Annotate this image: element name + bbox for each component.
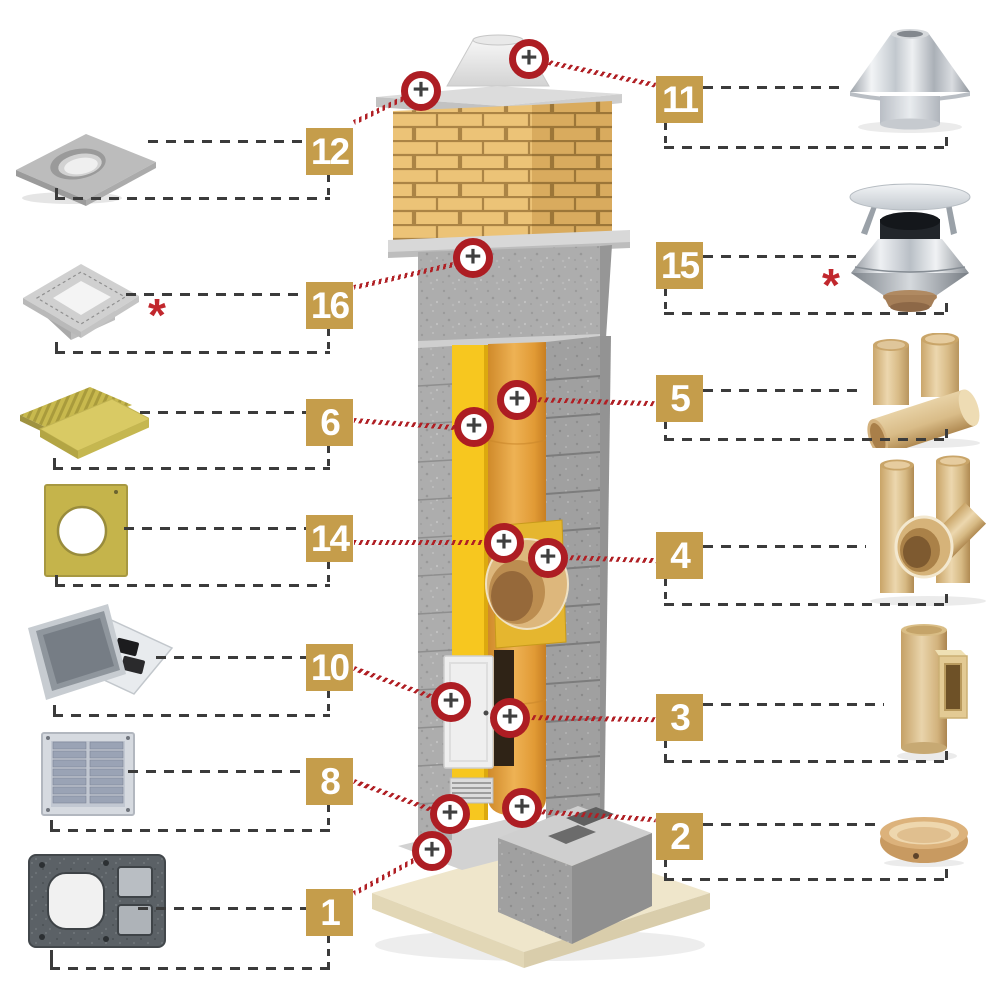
dash-line-3 xyxy=(703,703,884,706)
plus-marker-11[interactable]: + xyxy=(509,39,549,79)
plus-marker-8[interactable]: + xyxy=(430,794,470,834)
sloped-form-image xyxy=(15,252,145,347)
asterisk-15: * xyxy=(822,258,840,312)
chimney-block-image xyxy=(26,851,168,951)
product-cone-cap-with-plate xyxy=(845,173,975,315)
dash-line-6 xyxy=(140,411,306,414)
bracket-tick-8 xyxy=(50,820,53,829)
plus-marker-12[interactable]: + xyxy=(401,71,441,111)
bracket-h-8 xyxy=(50,829,330,832)
dash-line-12 xyxy=(148,140,306,143)
bracket-tick-6 xyxy=(53,458,56,467)
bracket-v-8 xyxy=(327,805,330,829)
bracket-v-2 xyxy=(664,860,667,878)
bracket-v-10 xyxy=(327,691,330,714)
bracket-tick-12 xyxy=(55,188,58,197)
bracket-h-1 xyxy=(50,967,330,970)
bracket-h-14 xyxy=(55,584,330,587)
condensate-bowl-image xyxy=(878,811,970,867)
product-stainless-chimney-cap xyxy=(836,24,984,134)
asterisk-16: * xyxy=(148,288,166,342)
bracket-v-1 xyxy=(327,936,330,967)
bracket-h-4 xyxy=(664,603,948,606)
label-10: 10 xyxy=(306,644,353,691)
bracket-tick-15 xyxy=(945,303,948,312)
dash-line-4 xyxy=(703,545,866,548)
label-3: 3 xyxy=(656,694,703,741)
plus-marker-1[interactable]: + xyxy=(412,831,452,871)
bracket-v-16 xyxy=(327,329,330,351)
plus-marker-5[interactable]: + xyxy=(497,380,537,420)
product-condensate-bowl xyxy=(878,811,970,867)
product-chimney-block xyxy=(26,851,168,951)
plus-marker-14[interactable]: + xyxy=(484,523,524,563)
bracket-v-15 xyxy=(664,289,667,312)
label-6: 6 xyxy=(306,399,353,446)
label-2: 2 xyxy=(656,813,703,860)
dash-line-1 xyxy=(138,907,306,910)
bracket-v-3 xyxy=(664,741,667,760)
cone-cap-image xyxy=(845,173,975,315)
bracket-v-12 xyxy=(327,175,330,197)
inspection-pipe-image xyxy=(895,622,970,762)
cover-slab-image xyxy=(10,126,160,206)
label-11: 11 xyxy=(656,76,703,123)
bracket-tick-16 xyxy=(55,342,58,351)
bracket-v-6 xyxy=(327,446,330,467)
plus-marker-4[interactable]: + xyxy=(528,538,568,578)
insulation-boards-image xyxy=(14,377,149,469)
product-inspection-door xyxy=(16,598,178,708)
dash-line-11 xyxy=(703,86,840,89)
plus-marker-16[interactable]: + xyxy=(453,238,493,278)
bracket-h-10 xyxy=(53,714,330,717)
bracket-h-3 xyxy=(664,760,948,763)
dash-line-10 xyxy=(156,656,306,659)
wool-plate-image xyxy=(42,482,130,579)
product-sloped-top-form xyxy=(15,252,145,347)
bracket-tick-2 xyxy=(945,869,948,878)
product-ceramic-tee-45 xyxy=(862,455,997,607)
dash-line-2 xyxy=(703,823,878,826)
label-5: 5 xyxy=(656,375,703,422)
plus-marker-6[interactable]: + xyxy=(454,407,494,447)
dash-line-8 xyxy=(128,770,306,773)
bracket-h-2 xyxy=(664,878,948,881)
product-wool-plate-with-hole xyxy=(42,482,130,579)
product-insulation-boards xyxy=(14,377,149,469)
bracket-v-4 xyxy=(664,579,667,603)
bracket-tick-5 xyxy=(945,429,948,438)
plus-marker-10[interactable]: + xyxy=(431,682,471,722)
bracket-tick-3 xyxy=(945,751,948,760)
bracket-tick-1 xyxy=(50,950,53,967)
pipe-segments-image xyxy=(865,333,985,448)
bracket-tick-4 xyxy=(945,594,948,603)
label-8: 8 xyxy=(306,758,353,805)
label-4: 4 xyxy=(656,532,703,579)
chimney-components-diagram: 12 16 6 14 10 8 1 11 15 5 4 3 2 * * xyxy=(0,0,1000,1000)
bracket-h-6 xyxy=(53,467,330,470)
product-cover-slab-with-hole xyxy=(10,126,160,206)
bracket-h-12 xyxy=(55,197,330,200)
bracket-h-11 xyxy=(664,146,948,149)
bracket-v-5 xyxy=(664,422,667,438)
label-1: 1 xyxy=(306,889,353,936)
bracket-h-5 xyxy=(664,438,948,441)
plus-marker-2[interactable]: + xyxy=(502,788,542,828)
bracket-tick-14 xyxy=(55,575,58,584)
label-16: 16 xyxy=(306,282,353,329)
bracket-tick-10 xyxy=(53,705,56,714)
label-14: 14 xyxy=(306,515,353,562)
product-ceramic-inspection-pipe xyxy=(895,622,970,762)
dash-line-5 xyxy=(703,389,864,392)
dash-line-14 xyxy=(124,527,306,530)
bracket-h-16 xyxy=(55,351,330,354)
label-12: 12 xyxy=(306,128,353,175)
bracket-h-15 xyxy=(664,312,948,315)
bracket-v-14 xyxy=(327,562,330,584)
plus-marker-3[interactable]: + xyxy=(490,698,530,738)
ventilation-grille-image xyxy=(40,730,136,818)
bracket-v-11 xyxy=(664,123,667,146)
label-15: 15 xyxy=(656,242,703,289)
red-link-14 xyxy=(354,540,487,545)
product-ceramic-pipe-segments xyxy=(865,333,985,448)
chimney-cap-image xyxy=(836,24,984,134)
tee-45-image xyxy=(862,455,997,607)
bracket-tick-11 xyxy=(945,137,948,146)
product-ventilation-grille xyxy=(40,730,136,818)
inspection-door-image xyxy=(16,598,178,708)
